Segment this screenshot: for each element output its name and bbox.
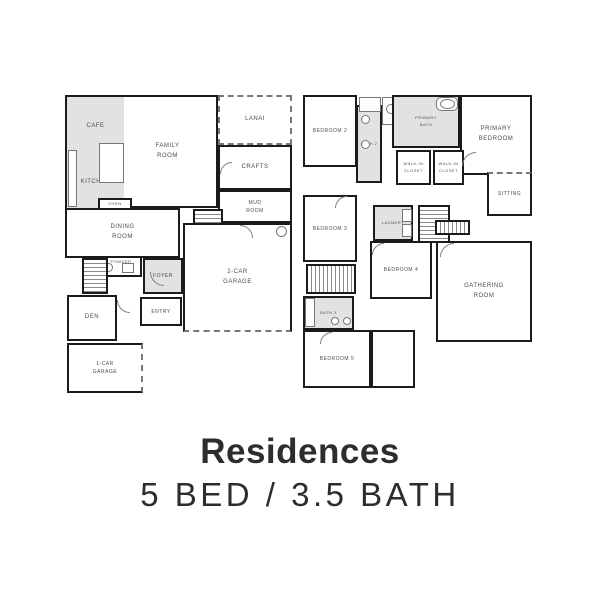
room-label: BEDROOM 2: [313, 127, 348, 135]
room-label: PRIMARY BATH: [415, 115, 437, 128]
room-label: ENTRY: [151, 308, 170, 316]
room-label: BATH 3: [320, 310, 337, 316]
room-label: WALK-IN CLOSET: [438, 161, 458, 174]
room-label: 2-CAR GARAGE: [223, 268, 252, 287]
sink-icon: [361, 115, 370, 124]
room-label: 1-CAR GARAGE: [93, 360, 117, 376]
room-label: WALK-IN CLOSET: [403, 161, 423, 174]
room-walk-in-closet-1: WALK-IN CLOSET: [396, 150, 431, 185]
room-bedroom-5: BEDROOM 5: [303, 330, 371, 388]
room-label: LANAI: [245, 115, 265, 125]
room-label: CAFE: [86, 122, 104, 132]
room-dining-room: DINING ROOM: [65, 208, 180, 258]
washer-icon: [402, 209, 412, 222]
room-label: FAMILY ROOM: [156, 142, 180, 161]
vanity: [359, 97, 381, 112]
room-label: SITTING: [498, 190, 521, 198]
sink-icon: [343, 317, 351, 325]
room-den: DEN: [67, 295, 117, 341]
bathtub-icon: [305, 298, 315, 327]
kitchen-island: [99, 143, 124, 183]
bed-bath-summary: 5 BED / 3.5 BATH: [0, 477, 600, 513]
room-label: GATHERING ROOM: [464, 282, 504, 301]
tub-basin: [440, 99, 455, 109]
stairs-landing: [435, 220, 470, 235]
room-label: MUD ROOM: [246, 199, 264, 215]
upper-hall: [371, 330, 415, 388]
room-lanai: LANAI: [218, 95, 292, 145]
room-label: BEDROOM 4: [384, 266, 419, 274]
first-floor-plan: FAMILY ROOMCAFEKITCHENOVENLANAICRAFTSMUD…: [65, 95, 292, 398]
room-label: DINING ROOM: [111, 223, 135, 242]
room-label: CRAFTS: [242, 163, 269, 173]
floor-plan-page: FAMILY ROOMCAFEKITCHENOVENLANAICRAFTSMUD…: [0, 0, 600, 600]
room-entry: ENTRY: [140, 297, 182, 326]
room-mud-room: MUD ROOM: [218, 190, 292, 223]
caption: Residences 5 BED / 3.5 BATH: [0, 433, 600, 513]
dryer-icon: [402, 224, 412, 237]
kitchen-counter: [68, 150, 77, 207]
room-walk-in-closet-2: WALK-IN CLOSET: [433, 150, 464, 185]
room-label: DEN: [85, 313, 99, 323]
stairs-basement: [82, 258, 108, 294]
room-sitting: SITTING: [487, 172, 532, 216]
toilet-icon: [361, 140, 370, 149]
room-label: BEDROOM 5: [320, 355, 355, 363]
room-label: BEDROOM 3: [313, 225, 348, 233]
room-bedroom-3: BEDROOM 3: [303, 195, 357, 262]
stairs-open-rail: [306, 264, 356, 294]
powder-toilet-icon: [122, 263, 134, 273]
second-floor-plan: BEDROOM 2BATH 2PRIMARY BATHPRIMARY BEDRO…: [303, 95, 532, 392]
sink-icon: [331, 317, 339, 325]
room-label: PRIMARY BEDROOM: [479, 125, 514, 144]
room-label: OVEN: [108, 201, 121, 207]
room-bedroom-2: BEDROOM 2: [303, 95, 357, 167]
room-label: LAUNDRY: [382, 220, 405, 226]
room-one-car-garage: 1-CAR GARAGE: [67, 343, 143, 393]
room-two-car-garage: 2-CAR GARAGE: [183, 223, 292, 332]
water-heater-icon: [276, 226, 287, 237]
door-arc: [117, 300, 130, 313]
page-title: Residences: [0, 433, 600, 472]
